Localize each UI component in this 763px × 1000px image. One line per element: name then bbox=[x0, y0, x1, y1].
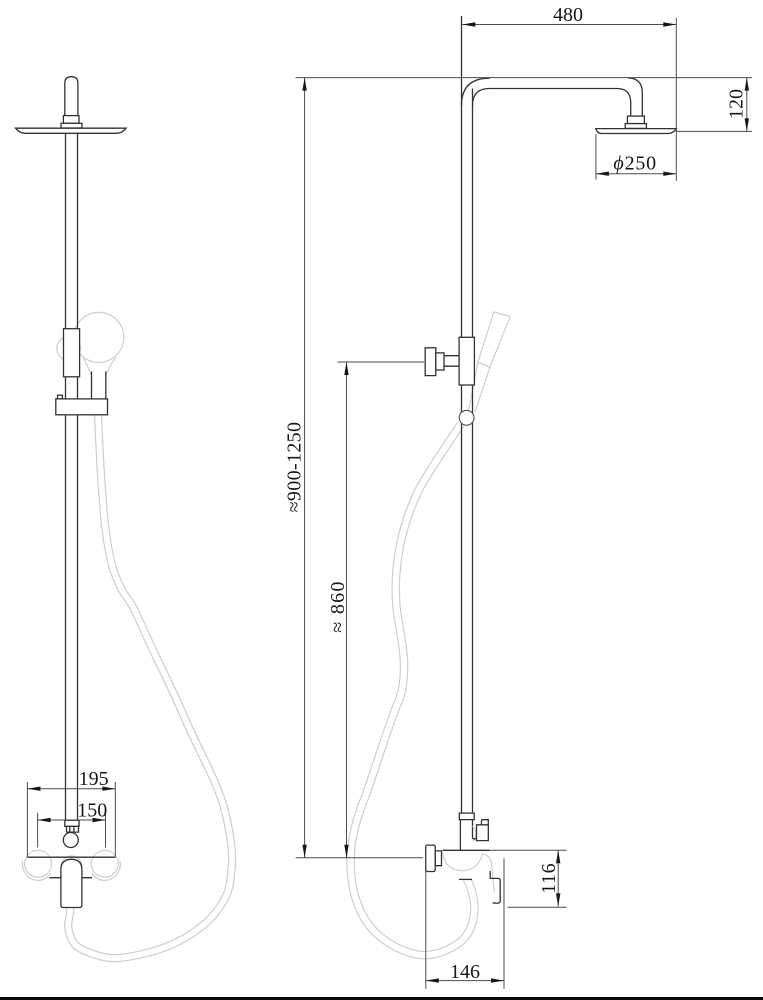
svg-text:120: 120 bbox=[726, 89, 748, 119]
svg-text:150: 150 bbox=[77, 800, 107, 822]
svg-text:ϕ250: ϕ250 bbox=[613, 152, 657, 174]
svg-text:480: 480 bbox=[553, 4, 583, 26]
svg-text:146: 146 bbox=[450, 961, 480, 983]
svg-text:≈900-1250: ≈900-1250 bbox=[284, 422, 306, 513]
svg-text:195: 195 bbox=[79, 768, 109, 790]
svg-text:116: 116 bbox=[538, 863, 560, 894]
svg-text:≈ 860: ≈ 860 bbox=[327, 580, 349, 632]
